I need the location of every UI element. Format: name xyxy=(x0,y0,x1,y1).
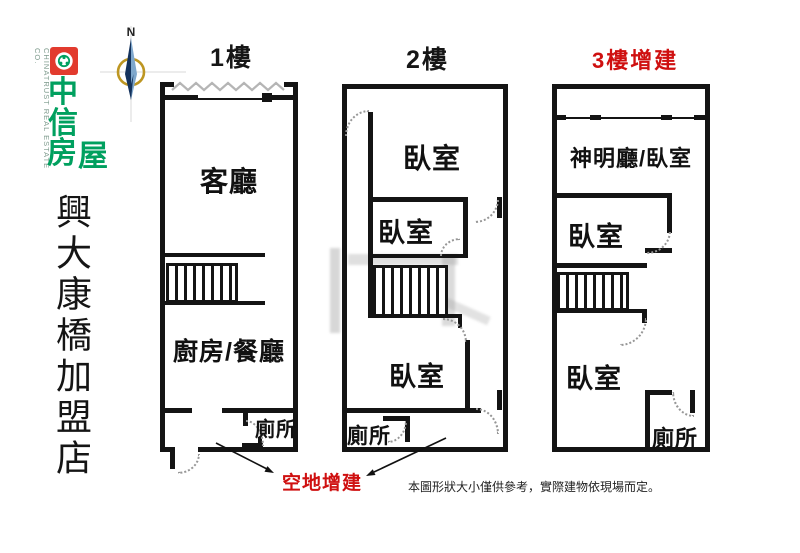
stairs xyxy=(557,272,629,311)
wall xyxy=(645,390,672,395)
wall xyxy=(160,82,174,87)
room-label-bedroom: 臥室 xyxy=(566,357,622,396)
floor1-title: 1樓 xyxy=(210,38,253,74)
wall xyxy=(694,115,710,120)
vacant-land-addition-label: 空地增建 xyxy=(282,468,362,495)
floor1-plan: 客廳 廚房/餐廳 廁所 xyxy=(160,82,298,452)
floor2-title: 2樓 xyxy=(406,40,449,76)
wall xyxy=(552,84,557,452)
floor3-title: 3樓增建 xyxy=(592,43,678,75)
wall xyxy=(160,408,192,413)
company-name-char: 屋 xyxy=(78,142,108,172)
wall xyxy=(552,193,672,198)
wall xyxy=(160,95,198,100)
wall xyxy=(645,390,650,452)
wall xyxy=(373,314,462,318)
wall xyxy=(198,447,298,452)
door-stop xyxy=(262,93,272,102)
door-swing-arc xyxy=(345,110,369,136)
store-name-vertical: 興大康橋加盟店 xyxy=(44,193,96,493)
wall xyxy=(284,82,298,87)
wall xyxy=(160,82,165,452)
room-label-toilet: 廁所 xyxy=(652,421,698,453)
wall xyxy=(347,408,481,413)
wall xyxy=(705,84,710,452)
wall xyxy=(160,253,265,257)
door-swing-arc xyxy=(672,392,694,417)
room-label-shrine-bedroom: 神明廳/臥室 xyxy=(552,141,710,173)
room-label-bedroom: 臥室 xyxy=(403,137,461,177)
company-logo-emblem xyxy=(50,47,78,75)
company-name-char: 房 xyxy=(47,139,77,169)
room-label-toilet: 廁所 xyxy=(255,413,297,442)
wall xyxy=(463,246,467,254)
door-swing-arc xyxy=(443,318,467,342)
wall xyxy=(160,301,265,305)
door-leaf xyxy=(566,117,694,119)
door-swing-arc xyxy=(620,318,647,346)
door-swing-arc xyxy=(476,408,499,434)
door-swing-arc xyxy=(440,238,460,256)
company-name-char: 中 xyxy=(48,78,78,108)
wall xyxy=(552,115,566,120)
door-swing-arc xyxy=(475,199,499,223)
wall xyxy=(170,452,175,469)
wall xyxy=(465,340,470,408)
stairs xyxy=(373,265,448,318)
floorplan-canvas: CHINATRUST REAL ESTATE CO. 中 信 房 屋 興大康橋加… xyxy=(0,0,800,553)
room-label-toilet: 廁所 xyxy=(347,420,391,450)
wall xyxy=(552,309,647,313)
wall xyxy=(552,84,710,89)
floor2-plan: 臥室 臥室 臥室 廁所 xyxy=(342,84,508,452)
wall xyxy=(293,82,298,452)
room-label-kitchen-dining: 廚房/餐廳 xyxy=(160,332,298,368)
wall xyxy=(373,197,465,202)
wall xyxy=(342,84,347,452)
company-name-char: 信 xyxy=(48,109,78,139)
wall xyxy=(272,95,298,100)
wall xyxy=(667,193,672,233)
door-leaf xyxy=(198,98,264,100)
room-label-bedroom: 臥室 xyxy=(378,211,434,250)
room-label-living: 客廳 xyxy=(160,160,298,200)
compass-north-label: N xyxy=(127,25,136,39)
room-label-bedroom: 臥室 xyxy=(389,355,445,394)
wall xyxy=(552,263,647,268)
wall xyxy=(342,84,508,89)
floor3-plan: 神明廳/臥室 臥室 臥室 廁所 xyxy=(552,84,710,452)
disclaimer-text: 本圖形狀大小僅供參考，實際建物依現場而定。 xyxy=(408,478,660,495)
wall xyxy=(503,84,508,452)
door-swing-arc xyxy=(178,454,200,474)
door-jamb xyxy=(497,390,502,410)
stairs xyxy=(166,263,238,303)
room-label-bedroom: 臥室 xyxy=(568,215,624,254)
